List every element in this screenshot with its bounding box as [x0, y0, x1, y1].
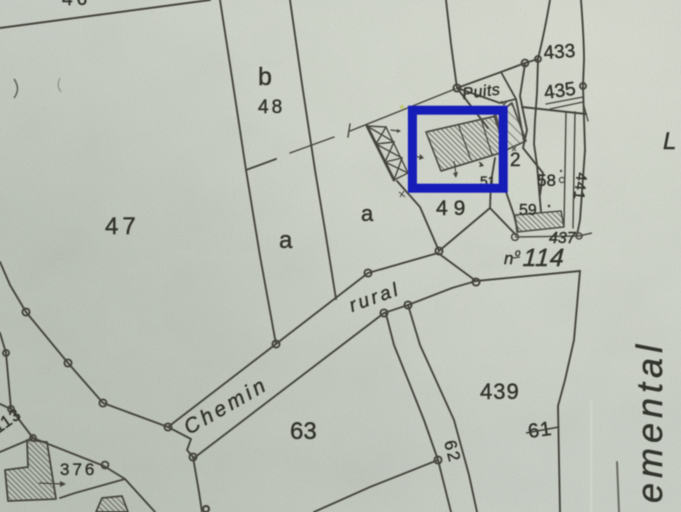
- svg-text:2: 2: [510, 150, 521, 171]
- svg-text:376: 376: [60, 460, 97, 479]
- svg-text:114: 114: [522, 244, 565, 272]
- svg-text:L: L: [663, 128, 676, 155]
- svg-text:441: 441: [570, 172, 590, 202]
- svg-text:48: 48: [258, 97, 285, 118]
- svg-text:435: 435: [543, 79, 577, 104]
- svg-text:47: 47: [105, 213, 140, 240]
- svg-text:a: a: [279, 227, 293, 254]
- svg-text:59: 59: [519, 202, 537, 219]
- svg-text:b: b: [258, 63, 272, 91]
- svg-text:439: 439: [480, 379, 520, 404]
- svg-text:46: 46: [62, 0, 91, 10]
- svg-text:n: n: [504, 249, 513, 268]
- svg-text:58: 58: [537, 171, 556, 190]
- svg-text:433: 433: [543, 41, 576, 64]
- svg-text:49: 49: [436, 197, 471, 220]
- svg-text:a: a: [361, 201, 374, 226]
- svg-text:63: 63: [290, 418, 317, 445]
- svg-text:emental: emental: [629, 340, 670, 503]
